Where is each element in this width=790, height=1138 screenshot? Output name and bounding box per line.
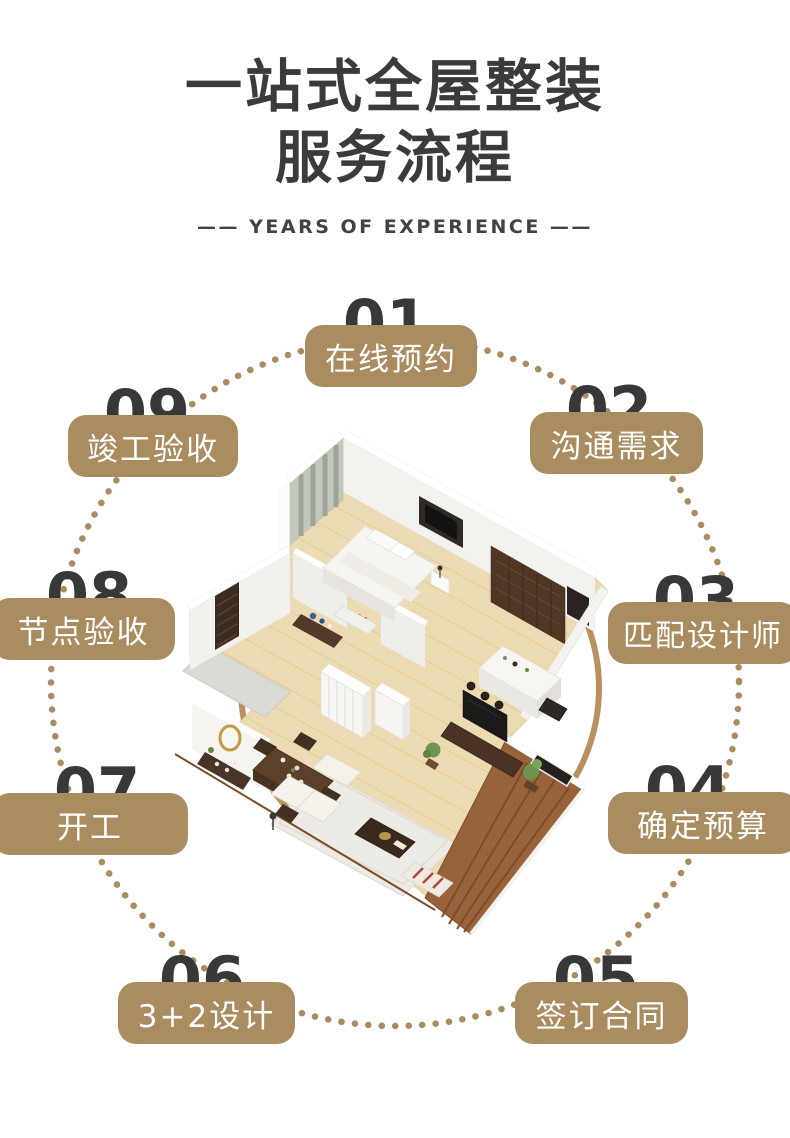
promo-infographic: 一站式全屋整装 服务流程 —— YEARS OF EXPERIENCE —— 0… [0,0,790,1138]
header: 一站式全屋整装 服务流程 —— YEARS OF EXPERIENCE —— [0,52,790,238]
step-4-label: 确定预算 [608,792,790,854]
page-title-line2: 服务流程 [0,123,790,194]
step-2-label: 沟通需求 [530,412,703,474]
step-9-label: 竣工验收 [68,415,238,477]
step-3-label: 匹配设计师 [608,602,790,664]
page-subtitle: —— YEARS OF EXPERIENCE —— [0,216,790,238]
page-title-line1: 一站式全屋整装 [0,52,790,123]
step-5-label: 签订合同 [515,982,688,1044]
step-6-label: 3+2设计 [118,982,295,1044]
step-7-label: 开工 [0,793,188,855]
step-1-label: 在线预约 [305,325,477,387]
floor-plan-illustration [175,420,625,945]
step-8-label: 节点验收 [0,598,175,660]
